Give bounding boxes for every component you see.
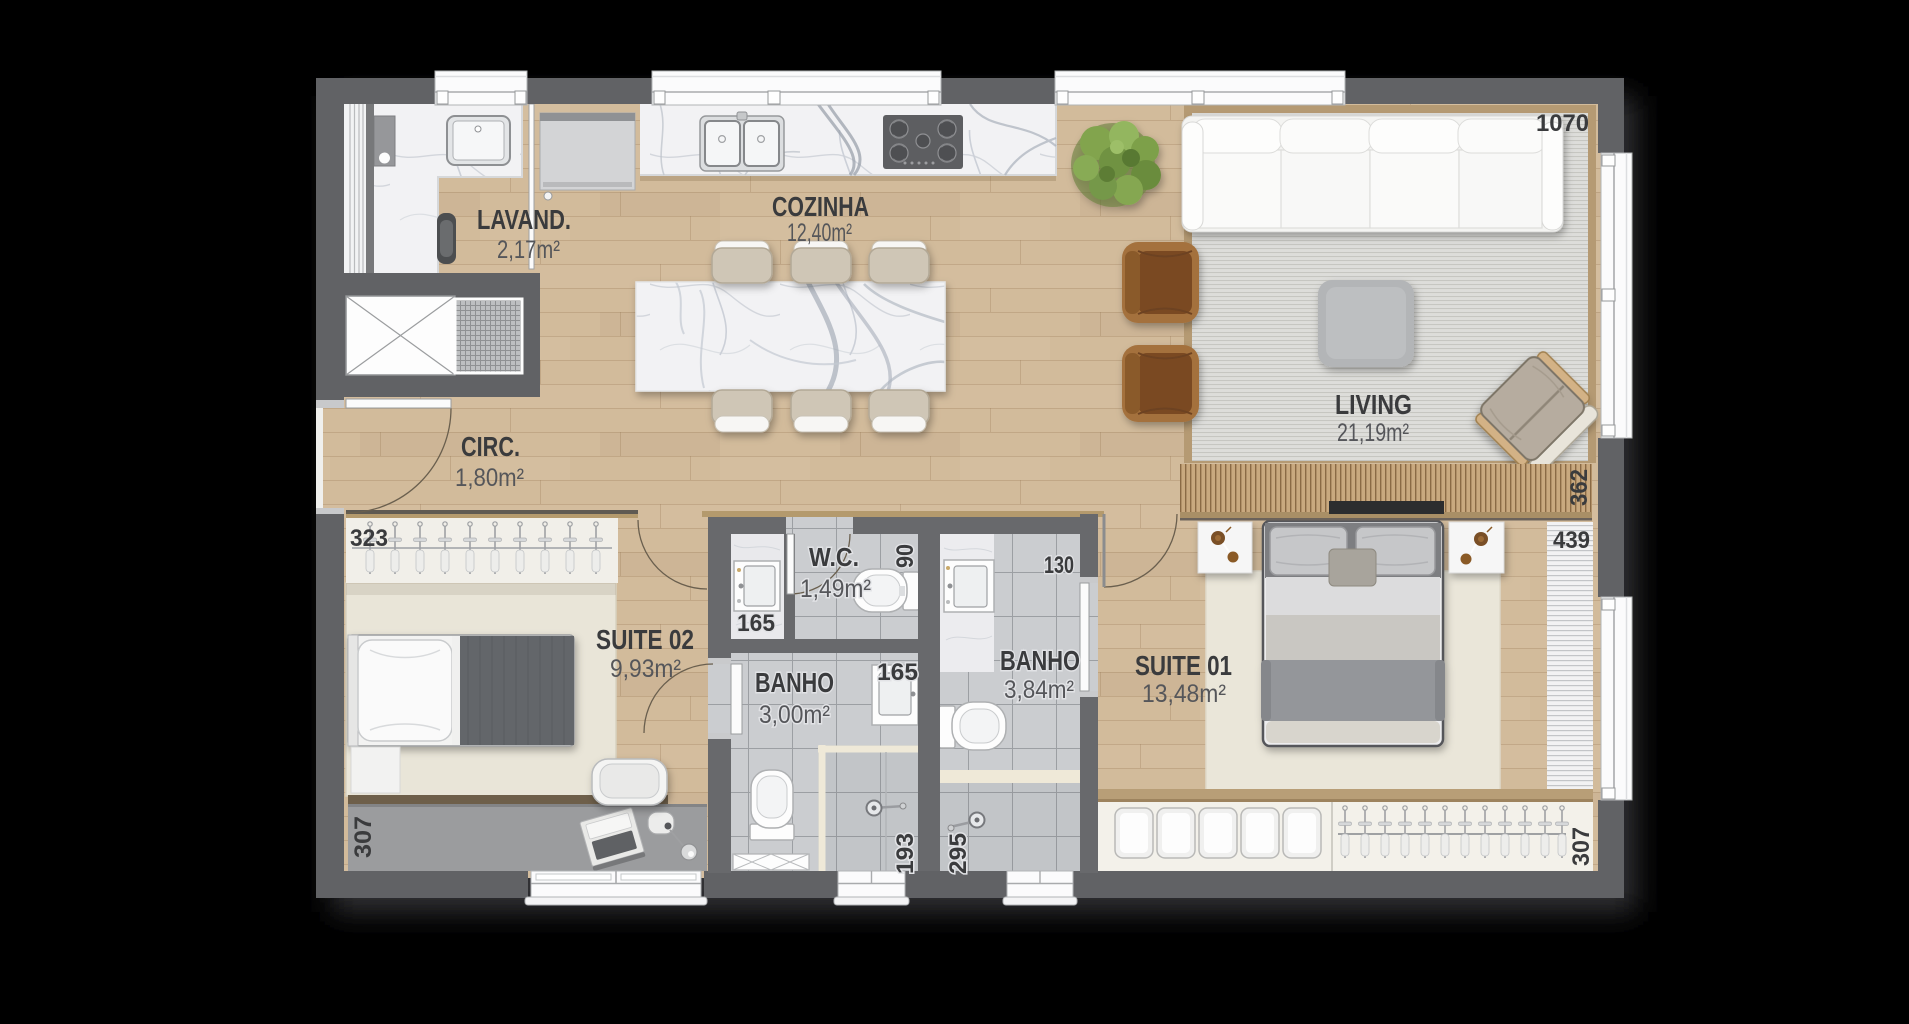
svg-text:3,84m²: 3,84m² bbox=[1004, 676, 1074, 704]
svg-text:307: 307 bbox=[350, 816, 377, 858]
svg-text:3,00m²: 3,00m² bbox=[759, 701, 830, 729]
svg-text:LAVAND.: LAVAND. bbox=[477, 204, 571, 235]
svg-text:12,40m²: 12,40m² bbox=[787, 219, 852, 247]
svg-text:130: 130 bbox=[1044, 552, 1074, 579]
svg-text:362: 362 bbox=[1566, 469, 1593, 506]
svg-text:439: 439 bbox=[1553, 527, 1590, 554]
svg-text:W.C.: W.C. bbox=[809, 542, 859, 572]
svg-text:2,17m²: 2,17m² bbox=[497, 236, 560, 264]
svg-text:13,48m²: 13,48m² bbox=[1142, 680, 1226, 708]
svg-text:9,93m²: 9,93m² bbox=[610, 655, 681, 683]
svg-text:90: 90 bbox=[892, 544, 919, 568]
svg-text:323: 323 bbox=[350, 525, 388, 552]
svg-text:1070: 1070 bbox=[1536, 110, 1589, 137]
svg-text:165: 165 bbox=[737, 610, 775, 637]
svg-text:BANHO: BANHO bbox=[755, 667, 834, 698]
svg-text:1,80m²: 1,80m² bbox=[455, 464, 524, 492]
svg-text:SUITE 02: SUITE 02 bbox=[596, 624, 694, 655]
svg-text:BANHO: BANHO bbox=[1000, 645, 1080, 676]
svg-text:165: 165 bbox=[877, 659, 918, 686]
svg-text:21,19m²: 21,19m² bbox=[1337, 419, 1409, 447]
svg-text:307: 307 bbox=[1568, 827, 1595, 866]
svg-text:295: 295 bbox=[945, 833, 972, 874]
svg-text:SUITE 01: SUITE 01 bbox=[1135, 650, 1232, 681]
svg-text:COZINHA: COZINHA bbox=[772, 191, 869, 222]
svg-text:193: 193 bbox=[892, 833, 919, 874]
svg-text:CIRC.: CIRC. bbox=[461, 431, 520, 462]
svg-text:LIVING: LIVING bbox=[1335, 389, 1412, 420]
svg-text:1,49m²: 1,49m² bbox=[800, 575, 871, 603]
